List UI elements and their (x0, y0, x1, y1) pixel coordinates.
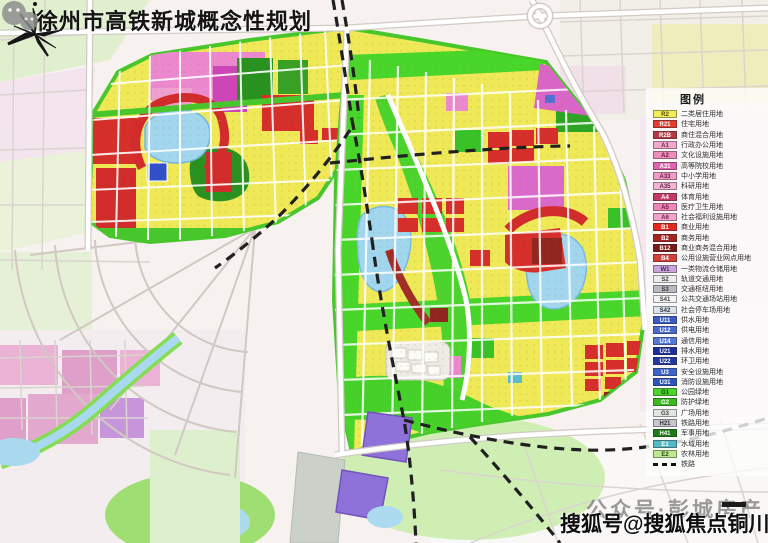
wechat-icon (0, 0, 40, 36)
legend-item: S3 交通枢纽用地 (653, 284, 766, 294)
legend-item-label: 二类居住用地 (681, 109, 723, 119)
legend-item-label: 供电用地 (681, 325, 709, 335)
legend-item-label: 消防设施用地 (681, 377, 723, 387)
legend-item: U11 供水用地 (653, 315, 766, 325)
legend-item-label: 农林用地 (681, 449, 709, 459)
legend-item: B1 商业用地 (653, 222, 766, 232)
legend-item: A2 文化设施用地 (653, 150, 766, 160)
legend-color-chip: A4 (653, 193, 677, 201)
legend-item: B4 公用设施营业网点用地 (653, 253, 766, 263)
legend-color-chip: U21 (653, 347, 677, 355)
legend-item-label: 轨道交通用地 (681, 274, 723, 284)
legend-item-label: 广场用地 (681, 408, 709, 418)
legend-item-label: 社会福利设施用地 (681, 212, 737, 222)
legend-item: 铁路 (653, 459, 766, 469)
legend-item: R2B 商住混合用地 (653, 130, 766, 140)
legend-item: U12 供电用地 (653, 325, 766, 335)
legend-color-chip: G1 (653, 388, 677, 396)
legend-item-label: 公共交通场站用地 (681, 294, 737, 304)
legend-item-label: 公园绿地 (681, 387, 709, 397)
legend-item-label: 水域用地 (681, 439, 709, 449)
legend-color-chip: G2 (653, 398, 677, 406)
legend-color-chip: A33 (653, 172, 677, 180)
legend-item-label: 商住混合用地 (681, 130, 723, 140)
legend-item-label: 文化设施用地 (681, 150, 723, 160)
legend-color-chip: A2 (653, 151, 677, 159)
legend-item: G1 公园绿地 (653, 387, 766, 397)
legend-item-label: 通信用地 (681, 336, 709, 346)
legend-item-label: 商务用地 (681, 233, 709, 243)
legend-item: S41 公共交通场站用地 (653, 294, 766, 304)
legend-item: H41 军事用地 (653, 428, 766, 438)
legend-item: R2 二类居住用地 (653, 109, 766, 119)
legend-title: 图例 (653, 91, 766, 107)
legend-color-chip: R21 (653, 120, 677, 128)
legend-color-chip: U3 (653, 368, 677, 376)
legend-color-chip: U11 (653, 316, 677, 324)
legend-item: A33 中小学用地 (653, 171, 766, 181)
legend-color-chip: B2 (653, 234, 677, 242)
legend-item: U21 排水用地 (653, 346, 766, 356)
legend-color-chip: S41 (653, 295, 677, 303)
legend-color-chip: U22 (653, 357, 677, 365)
legend-color-chip (653, 463, 677, 466)
legend-item-label: 公用设施营业网点用地 (681, 253, 751, 263)
legend-panel: 图例 R2 二类居住用地 R21 住宅用地 R2B 商住混合用地 A1 行政办公… (646, 88, 768, 476)
scale-bar (722, 502, 746, 507)
legend-item-label: 铁路用地 (681, 418, 709, 428)
legend-item-label: 体育用地 (681, 192, 709, 202)
legend-item: W1 一类物流仓储用地 (653, 263, 766, 273)
legend-item: U22 环卫用地 (653, 356, 766, 366)
legend-item-label: 安全设施用地 (681, 367, 723, 377)
legend-item-label: 高等院校用地 (681, 161, 723, 171)
legend-color-chip: S42 (653, 306, 677, 314)
legend-color-chip: U14 (653, 337, 677, 345)
legend-item-label: 供水用地 (681, 315, 709, 325)
legend-item: A5 医疗卫生用地 (653, 202, 766, 212)
legend-color-chip: R2 (653, 110, 677, 118)
legend-item-label: 住宅用地 (681, 119, 709, 129)
legend-items: R2 二类居住用地 R21 住宅用地 R2B 商住混合用地 A1 行政办公用地 … (653, 109, 766, 469)
legend-color-chip: A6 (653, 213, 677, 221)
legend-item-label: 社会停车场用地 (681, 305, 730, 315)
legend-item: S42 社会停车场用地 (653, 305, 766, 315)
legend-item: S2 轨道交通用地 (653, 274, 766, 284)
legend-item-label: 商业用地 (681, 222, 709, 232)
legend-color-chip: S3 (653, 285, 677, 293)
legend-item-label: 铁路 (681, 459, 695, 469)
legend-color-chip: A31 (653, 162, 677, 170)
legend-item: B2 商务用地 (653, 233, 766, 243)
legend-item: A35 科研用地 (653, 181, 766, 191)
legend-item: E2 农林用地 (653, 449, 766, 459)
legend-item-label: 防护绿地 (681, 397, 709, 407)
legend-color-chip: H21 (653, 419, 677, 427)
legend-color-chip: H41 (653, 429, 677, 437)
legend-color-chip: A35 (653, 182, 677, 190)
legend-item-label: 中小学用地 (681, 171, 716, 181)
legend-color-chip: B1 (653, 223, 677, 231)
legend-item: A4 体育用地 (653, 191, 766, 201)
legend-color-chip: E1 (653, 440, 677, 448)
legend-item: U31 消防设施用地 (653, 377, 766, 387)
legend-item: U3 安全设施用地 (653, 366, 766, 376)
legend-item-label: 行政办公用地 (681, 140, 723, 150)
legend-color-chip: G3 (653, 409, 677, 417)
legend-item-label: 医疗卫生用地 (681, 202, 723, 212)
legend-color-chip: B4 (653, 254, 677, 262)
legend-color-chip: U12 (653, 326, 677, 334)
planning-map-page: 徐州市高铁新城概念性规划 图例 R2 二类居住用地 R21 住宅用地 R2B 商… (0, 0, 768, 543)
legend-color-chip: U31 (653, 378, 677, 386)
legend-item: A31 高等院校用地 (653, 160, 766, 170)
legend-item: G3 广场用地 (653, 408, 766, 418)
legend-item: A1 行政办公用地 (653, 140, 766, 150)
legend-item-label: 科研用地 (681, 181, 709, 191)
legend-item-label: 军事用地 (681, 428, 709, 438)
legend-color-chip: B12 (653, 244, 677, 252)
legend-item-label: 环卫用地 (681, 356, 709, 366)
legend-item-label: 排水用地 (681, 346, 709, 356)
legend-item: R21 住宅用地 (653, 119, 766, 129)
legend-color-chip: S2 (653, 275, 677, 283)
map-title: 徐州市高铁新城概念性规划 (36, 4, 312, 36)
watermark-sohu: 搜狐号@搜狐焦点铜川站 (560, 508, 768, 538)
legend-item: B12 商业商务混合用地 (653, 243, 766, 253)
legend-item-label: 交通枢纽用地 (681, 284, 723, 294)
legend-color-chip: W1 (653, 265, 677, 273)
legend-item: A6 社会福利设施用地 (653, 212, 766, 222)
legend-item-label: 商业商务混合用地 (681, 243, 737, 253)
legend-color-chip: R2B (653, 131, 677, 139)
legend-item: H21 铁路用地 (653, 418, 766, 428)
legend-color-chip: E2 (653, 450, 677, 458)
legend-color-chip: A5 (653, 203, 677, 211)
legend-item-label: 一类物流仓储用地 (681, 264, 737, 274)
legend-item: E1 水域用地 (653, 439, 766, 449)
legend-item: U14 通信用地 (653, 336, 766, 346)
legend-color-chip: A1 (653, 141, 677, 149)
legend-item: G2 防护绿地 (653, 397, 766, 407)
